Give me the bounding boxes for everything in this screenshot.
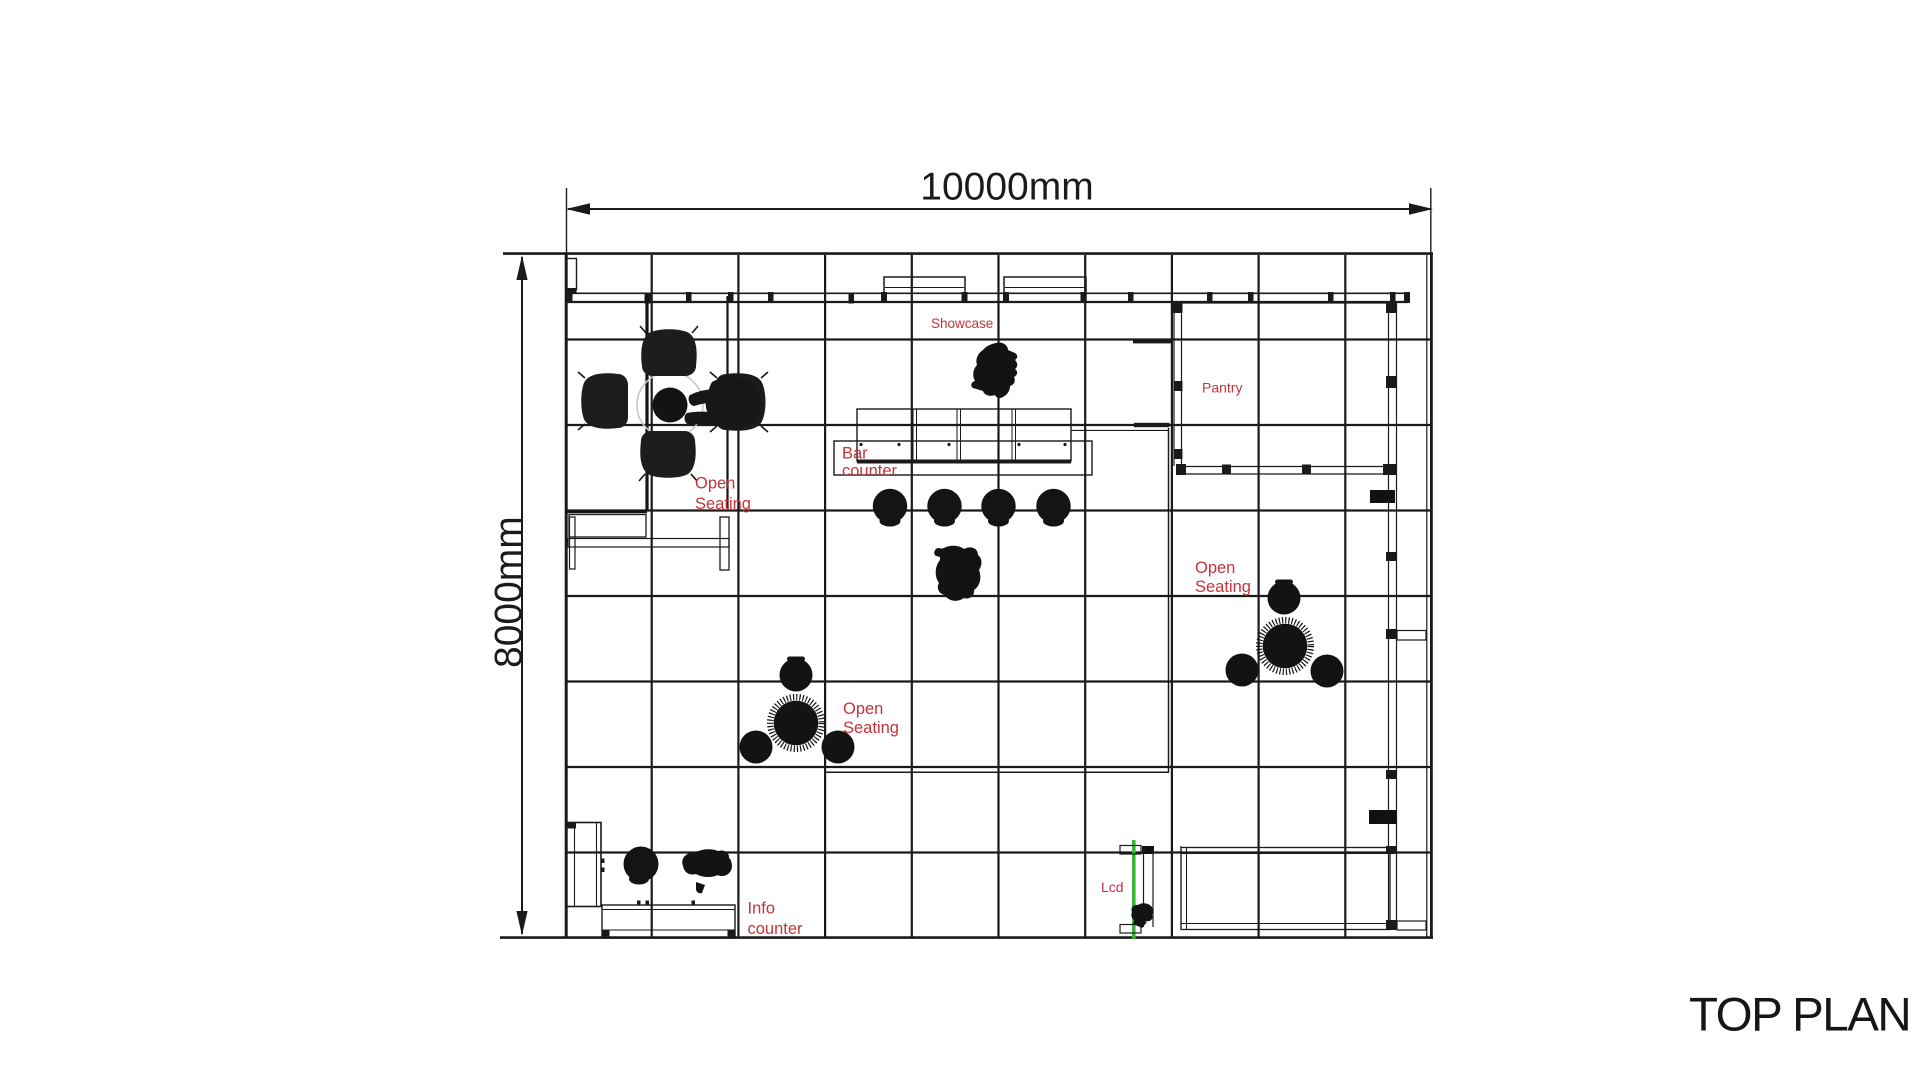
svg-text:counter: counter [842,462,898,480]
svg-text:Showcase: Showcase [931,316,993,331]
svg-text:Lcd: Lcd [1101,879,1124,895]
svg-text:Open: Open [695,475,735,493]
svg-text:Bar: Bar [842,445,868,463]
svg-text:TOP PLAN: TOP PLAN [1689,989,1910,1042]
svg-text:Seating: Seating [695,495,751,513]
svg-text:counter: counter [748,920,804,938]
svg-text:10000mm: 10000mm [920,166,1093,209]
svg-text:Open: Open [843,700,883,718]
svg-text:Open: Open [1195,559,1235,577]
svg-text:8000mm: 8000mm [488,516,531,668]
svg-text:Info: Info [748,900,776,918]
svg-text:Seating: Seating [1195,578,1251,596]
svg-text:Seating: Seating [843,719,899,737]
svg-text:Pantry: Pantry [1202,380,1242,396]
